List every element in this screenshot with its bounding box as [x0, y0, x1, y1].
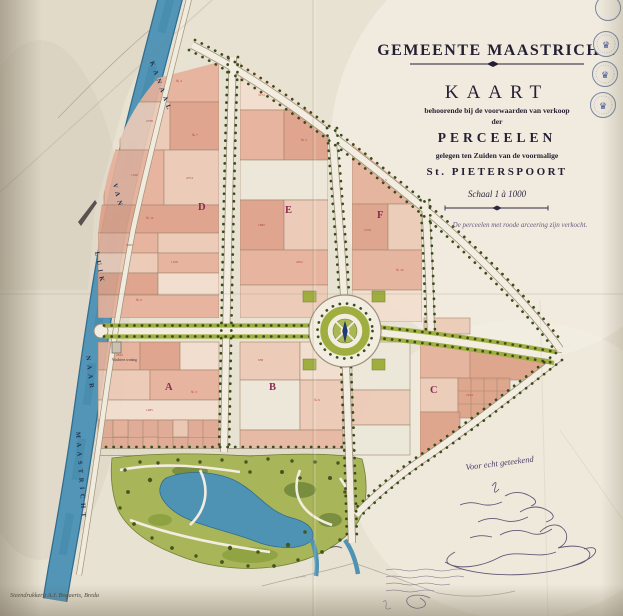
edge-shadow-bottom [0, 584, 623, 616]
section-letter-e: E [285, 205, 292, 216]
section-letter-d: D [198, 202, 206, 213]
parcel-mark: 1890 [258, 223, 265, 227]
section-letter-c: C [430, 385, 438, 396]
parcel-mark: № 5 [381, 178, 387, 182]
subtitle-line4: gelegen ten Zuiden van de voormalige [436, 151, 559, 160]
guard-house-label: Wachters woning [112, 358, 137, 362]
parcel-mark: 1520 [131, 173, 138, 177]
parcel-mark: 1108 [171, 260, 178, 264]
parcel-mark: 2610 [116, 353, 123, 357]
parcel-mark: 2194 [466, 393, 473, 397]
parcel-mark: № 12 [146, 216, 154, 220]
parcel-mark: 1485 [146, 408, 153, 412]
parcel-mark: № 3 [191, 390, 197, 394]
edge-shadow-left [0, 0, 42, 616]
section-letter-b: B [269, 382, 276, 393]
parcel-mark: 3172 [258, 93, 265, 97]
subtitle-line2: der [492, 117, 504, 126]
parcel-mark: 2052 [296, 260, 303, 264]
map-word-kaart: KAART [445, 82, 549, 103]
scanned-map-gemeente-maastricht: Wachters woning KANAAL VAN LUIK NAAR MAA… [0, 0, 623, 616]
parcel-mark: № 4 [176, 79, 182, 83]
subtitle-line1: behoorende bij de voorwaarden van verkoo… [424, 106, 569, 115]
map-canvas: Wachters woning KANAAL VAN LUIK NAAR MAA… [0, 0, 623, 616]
parcel-mark: 938 [258, 358, 263, 362]
map-title: GEMEENTE MAASTRICHT. [377, 42, 617, 59]
parcel-mark: № 2 [301, 138, 307, 142]
parcel-mark: 1376 [364, 228, 371, 232]
parcel-mark: 2265 [126, 243, 133, 247]
subtitle-pieterspoort: St. PIETERSPOORT [426, 166, 567, 178]
edge-shadow-right [601, 0, 623, 616]
parcel-mark: № 7 [192, 133, 198, 137]
red-parcel-note: De perceelen met roode arceering zijn ve… [452, 221, 588, 229]
parcel-mark: № 9 [136, 298, 142, 302]
parcel-mark: № 10 [396, 268, 404, 272]
parcel-mark: 2738 [146, 119, 153, 123]
subtitle-perceelen: PERCEELEN [438, 130, 557, 145]
section-letter-f: F [377, 210, 383, 221]
scale-text: Schaal 1 à 1000 [468, 189, 527, 199]
parcel-mark: 4374 [186, 176, 193, 180]
section-letter-a: A [165, 382, 173, 393]
